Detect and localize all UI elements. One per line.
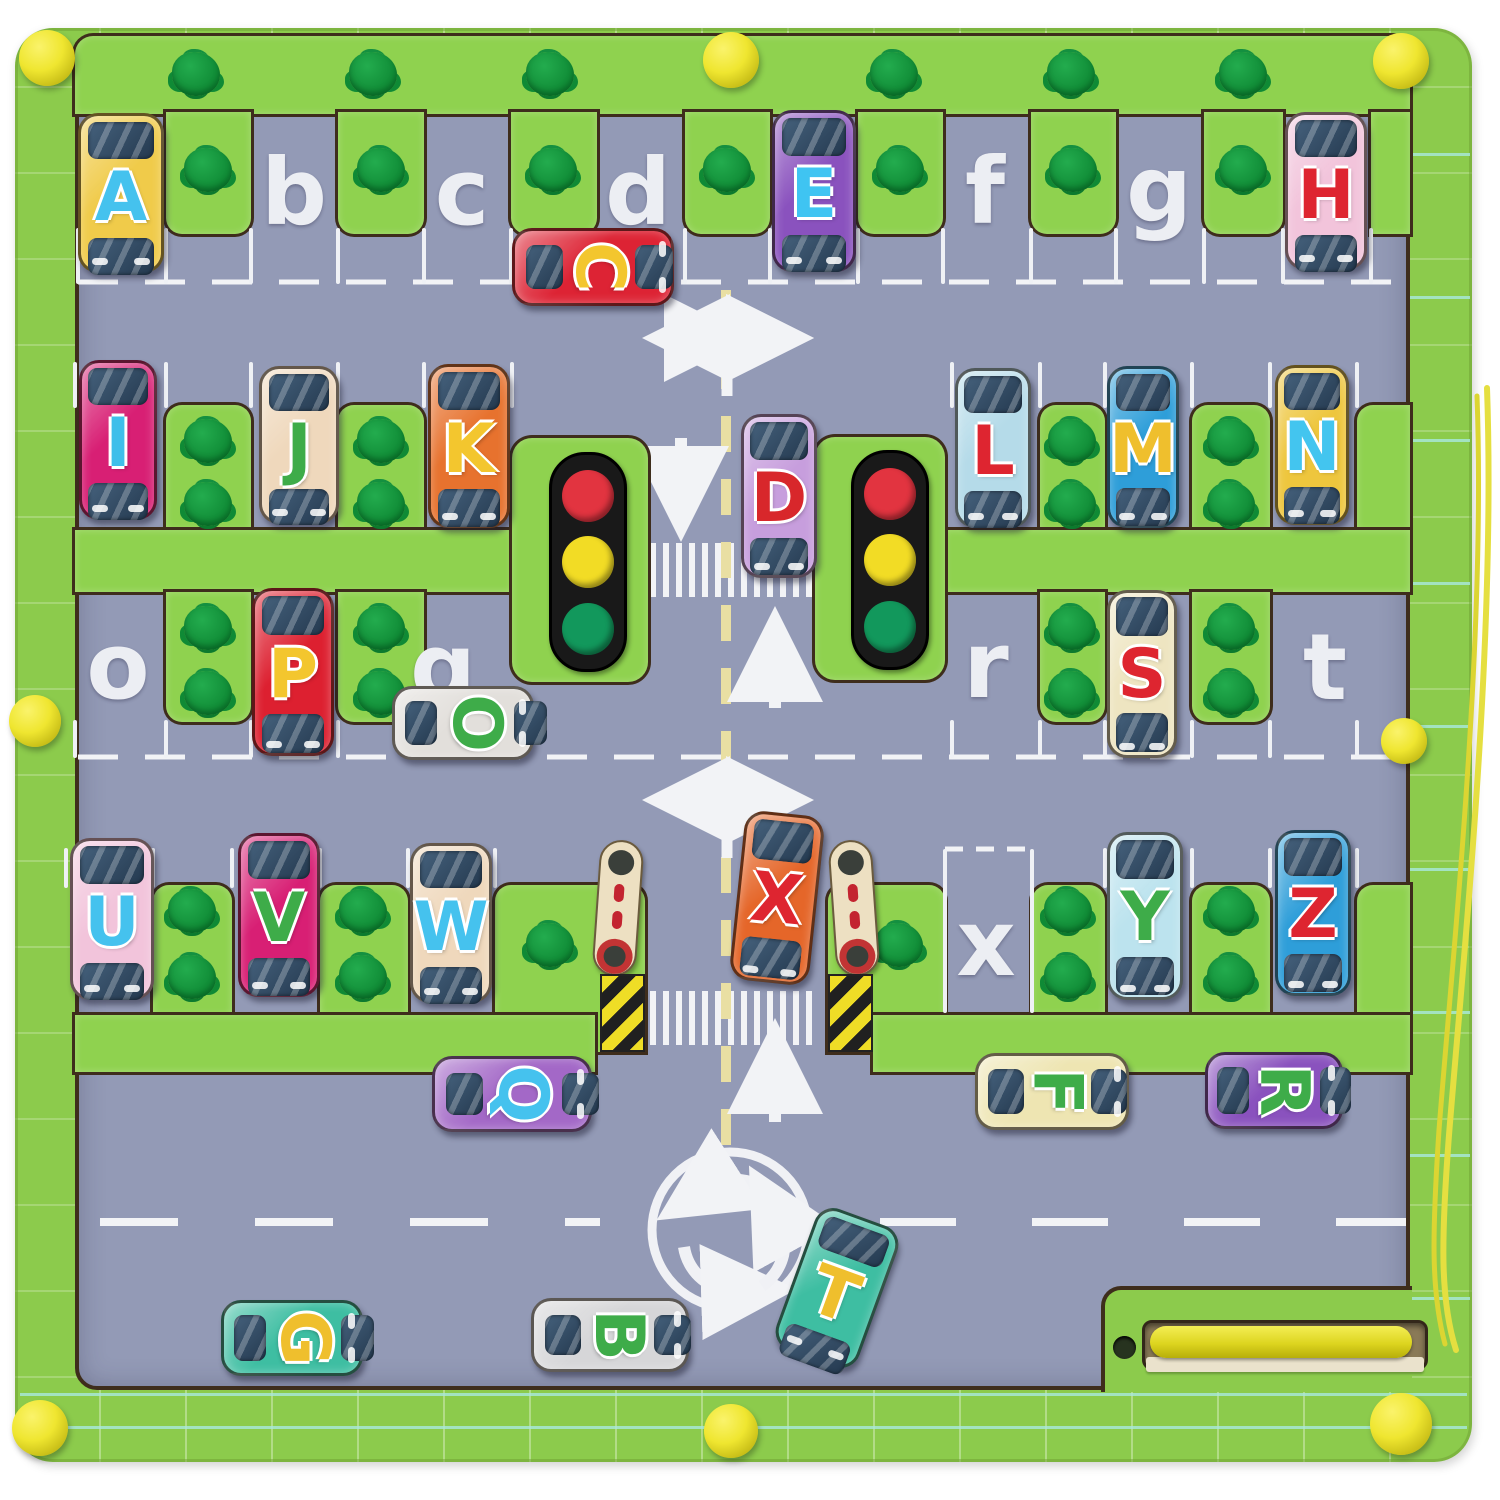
magnetic-pen[interactable] (1150, 1326, 1412, 1358)
car-rear-window (262, 714, 324, 753)
car-letter: K (431, 416, 507, 484)
car-letter: U (73, 889, 151, 957)
car-letter: Y (1110, 884, 1180, 952)
tree-icon (184, 419, 232, 463)
bay-divider-line (164, 362, 168, 408)
car-rear-window (1320, 1067, 1352, 1114)
car-rear-window (1116, 488, 1170, 525)
toy-board-photo: bcdfgoqrtxACEHIJKDLMNPSOUVWXYZQFRTBG (0, 0, 1500, 1500)
tree-icon (1049, 148, 1097, 192)
bay-divider-line (1268, 720, 1272, 758)
car-letter: X (736, 862, 817, 937)
parking-spot-t: t (1303, 622, 1347, 714)
car-rear-window (88, 483, 147, 520)
tree-icon (703, 148, 751, 192)
car-letter: S (1110, 641, 1174, 709)
car-M[interactable]: M (1107, 366, 1179, 528)
tree-icon (357, 419, 405, 463)
parking-spot-b: b (261, 147, 327, 239)
tree-icon (172, 52, 220, 96)
barrier-dash (613, 884, 624, 902)
bay-divider-line (1029, 228, 1033, 284)
car-letter: O (442, 694, 510, 752)
tree-icon (339, 889, 387, 933)
parking-spot-d: d (605, 147, 671, 239)
corner-knob[interactable] (703, 32, 759, 88)
car-R[interactable]: R (1205, 1052, 1343, 1129)
parking-spot-c: c (435, 147, 490, 239)
bay-divider-line (856, 228, 860, 284)
tree-icon (1207, 671, 1255, 715)
car-letter: Z (1278, 881, 1348, 949)
car-windshield (88, 122, 154, 159)
car-G[interactable]: G (221, 1300, 363, 1376)
bay-divider-line (336, 720, 340, 758)
traffic-light (549, 452, 627, 672)
car-windshield (1116, 597, 1169, 636)
tree-icon (1048, 606, 1096, 650)
car-Z[interactable]: Z (1275, 830, 1351, 996)
bay-divider-line (230, 848, 234, 888)
car-windshield (750, 422, 807, 460)
car-letter: I (82, 410, 154, 478)
car-letter: Q (487, 1065, 557, 1123)
car-windshield (88, 368, 147, 405)
car-rear-window (80, 963, 144, 1000)
car-windshield (1116, 374, 1170, 411)
tree-icon (1044, 955, 1092, 999)
tree-icon (526, 923, 574, 967)
bay-divider-line (164, 228, 168, 284)
car-windshield (248, 841, 310, 879)
tree-icon (529, 148, 577, 192)
tree-icon (1207, 482, 1255, 526)
car-windshield (545, 1315, 581, 1356)
car-I[interactable]: I (79, 360, 157, 520)
car-letter: M (1110, 416, 1176, 484)
bay-divider-line (422, 362, 426, 408)
bay-divider-line (1114, 228, 1118, 284)
car-rear-window (248, 958, 310, 996)
car-rear-window (341, 1315, 374, 1361)
car-windshield (1116, 840, 1173, 879)
car-windshield (782, 118, 846, 155)
bay-divider-line (493, 848, 497, 888)
car-B[interactable]: B (531, 1298, 689, 1372)
bay-divider-line (64, 848, 68, 888)
parking-spot-x: x (956, 898, 1015, 990)
tree-icon (876, 148, 924, 192)
barrier-striped-base (600, 974, 645, 1052)
bay-divider-line (1355, 848, 1359, 888)
car-rear-window (514, 701, 547, 745)
maze-wall (1357, 885, 1410, 1015)
bay-divider-line (1268, 362, 1272, 408)
bay-divider-line (1038, 362, 1042, 408)
car-windshield (526, 245, 563, 289)
bay-divider-line (422, 228, 426, 284)
car-rear-window (738, 935, 802, 980)
car-E[interactable]: E (772, 110, 856, 272)
tree-icon (1048, 419, 1096, 463)
barrier-wheel (595, 937, 633, 975)
car-letter: W (413, 894, 489, 962)
green-lamp (864, 601, 916, 653)
corner-knob[interactable] (1370, 1393, 1432, 1455)
tree-icon (168, 889, 216, 933)
car-rear-window (635, 245, 672, 289)
car-windshield (234, 1315, 267, 1361)
bay-divider-line (73, 362, 77, 408)
car-P[interactable]: P (252, 588, 334, 756)
tree-icon (1219, 148, 1267, 192)
car-letter: R (1249, 1064, 1320, 1116)
car-U[interactable]: U (70, 838, 154, 1000)
car-windshield (446, 1073, 483, 1115)
car-rear-window (1116, 713, 1169, 752)
maze-wall (75, 530, 512, 592)
traffic-light (851, 450, 929, 670)
tree-icon (870, 52, 918, 96)
car-letter: A (81, 164, 161, 232)
bay-divider-line (249, 362, 253, 408)
bay-divider-line (510, 362, 514, 408)
tree-icon (357, 606, 405, 650)
tree-icon (1207, 606, 1255, 650)
barrier-wheel (838, 937, 876, 975)
tree-icon (875, 923, 923, 967)
corner-knob[interactable] (19, 30, 75, 86)
car-letter: F (1022, 1068, 1093, 1114)
red-lamp (864, 468, 916, 520)
barrier-dash (847, 884, 858, 902)
car-W[interactable]: W (410, 843, 492, 1003)
car-rear-window (1284, 954, 1341, 992)
bay-divider-line (1190, 720, 1194, 758)
car-letter: N (1278, 414, 1346, 482)
car-A[interactable]: A (78, 113, 164, 273)
car-letter: P (255, 641, 331, 709)
bay-divider-line (1369, 228, 1373, 284)
barrier-post[interactable] (827, 839, 880, 978)
car-rear-window (420, 967, 482, 1004)
tree-icon (168, 955, 216, 999)
green-lamp (562, 603, 614, 655)
car-windshield (1217, 1067, 1249, 1114)
car-windshield (420, 851, 482, 888)
maze-wall (945, 530, 1410, 592)
tree-icon (1219, 52, 1267, 96)
parking-spot-g: g (1126, 144, 1192, 236)
bay-divider-line (1190, 848, 1194, 888)
car-C[interactable]: C (512, 228, 674, 306)
car-Q[interactable]: Q (432, 1056, 592, 1132)
barrier-dot (607, 849, 635, 876)
tree-icon (1207, 955, 1255, 999)
yellow-lamp (562, 536, 614, 588)
car-H[interactable]: H (1285, 112, 1367, 270)
corner-knob[interactable] (9, 695, 61, 747)
car-rear-window (1116, 957, 1173, 996)
car-windshield (405, 701, 438, 745)
bay-divider-line (1355, 720, 1359, 758)
maze-wall (1357, 405, 1410, 530)
car-letter: V (241, 885, 317, 953)
bay-divider-line (943, 849, 947, 1013)
car-windshield (1295, 120, 1357, 156)
bay-divider-line (1202, 228, 1206, 284)
car-letter: J (262, 416, 336, 484)
tree-icon (184, 148, 232, 192)
car-letter: C (563, 242, 635, 292)
tree-icon (1207, 889, 1255, 933)
bay-divider-line (950, 720, 954, 758)
car-letter: G (269, 1310, 339, 1366)
yellow-lamp (864, 534, 916, 586)
car-F[interactable]: F (975, 1053, 1129, 1130)
bay-divider-line (249, 228, 253, 284)
car-windshield (438, 372, 500, 410)
car-L[interactable]: L (955, 368, 1031, 528)
car-K[interactable]: K (428, 364, 510, 528)
pen-shelf (1146, 1357, 1424, 1372)
car-rear-window (750, 538, 807, 576)
car-V[interactable]: V (238, 833, 320, 997)
car-S[interactable]: S (1107, 590, 1177, 758)
car-rear-window (1295, 235, 1357, 271)
bay-divider-line (1030, 849, 1034, 1013)
car-rear-window (964, 491, 1021, 528)
car-windshield (1284, 373, 1340, 410)
bay-divider-line (1038, 720, 1042, 758)
tree-icon (526, 52, 574, 96)
pen-hole (1113, 1336, 1136, 1359)
bay-divider-line (1355, 362, 1359, 408)
car-letter: D (744, 465, 814, 533)
tree-icon (1207, 419, 1255, 463)
bay-divider-line (941, 228, 945, 284)
maze-wall (1371, 112, 1410, 234)
car-windshield (1284, 838, 1341, 876)
tree-icon (184, 482, 232, 526)
bay-divider-line (1268, 848, 1272, 888)
tree-icon (349, 52, 397, 96)
tree-icon (339, 955, 387, 999)
car-Y[interactable]: Y (1107, 832, 1183, 1000)
tree-icon (357, 148, 405, 192)
car-rear-window (654, 1315, 690, 1356)
red-lamp (562, 470, 614, 522)
car-O[interactable]: O (392, 686, 534, 760)
corner-knob[interactable] (12, 1400, 68, 1456)
tree-icon (184, 671, 232, 715)
parking-spot-f: f (965, 146, 1005, 238)
tree-icon (357, 482, 405, 526)
corner-knob[interactable] (1381, 718, 1427, 764)
car-rear-window (438, 489, 500, 527)
bay-divider-line (73, 720, 77, 758)
corner-knob[interactable] (704, 1404, 758, 1458)
bay-divider-line (950, 362, 954, 408)
car-D[interactable]: D (741, 414, 817, 578)
car-letter: E (775, 161, 853, 229)
bay-divider-line (336, 228, 340, 284)
tree-icon (184, 606, 232, 650)
car-windshield (964, 376, 1021, 413)
car-rear-window (269, 489, 330, 525)
barrier-dash (612, 911, 623, 929)
barrier-striped-base (828, 974, 873, 1052)
parking-spot-o: o (86, 621, 149, 713)
bay-divider-line (683, 228, 687, 284)
car-letter: L (958, 418, 1028, 486)
tree-icon (1048, 482, 1096, 526)
car-letter: H (1288, 162, 1364, 230)
parking-spot-r: r (963, 620, 1008, 712)
tree-icon (1048, 671, 1096, 715)
car-J[interactable]: J (259, 366, 339, 524)
barrier-dot (837, 849, 865, 876)
car-rear-window (1284, 487, 1340, 524)
car-rear-window (562, 1073, 599, 1115)
bay-divider-line (1190, 362, 1194, 408)
tree-icon (1047, 52, 1095, 96)
car-windshield (80, 846, 144, 883)
car-rear-window (782, 235, 846, 272)
corner-knob[interactable] (1373, 33, 1429, 89)
car-windshield (262, 596, 324, 635)
barrier-dash (849, 911, 860, 929)
car-letter: B (584, 1309, 652, 1361)
car-N[interactable]: N (1275, 365, 1349, 525)
car-windshield (269, 374, 330, 410)
tree-icon (1044, 889, 1092, 933)
car-rear-window (88, 238, 154, 275)
bay-divider-line (164, 720, 168, 758)
